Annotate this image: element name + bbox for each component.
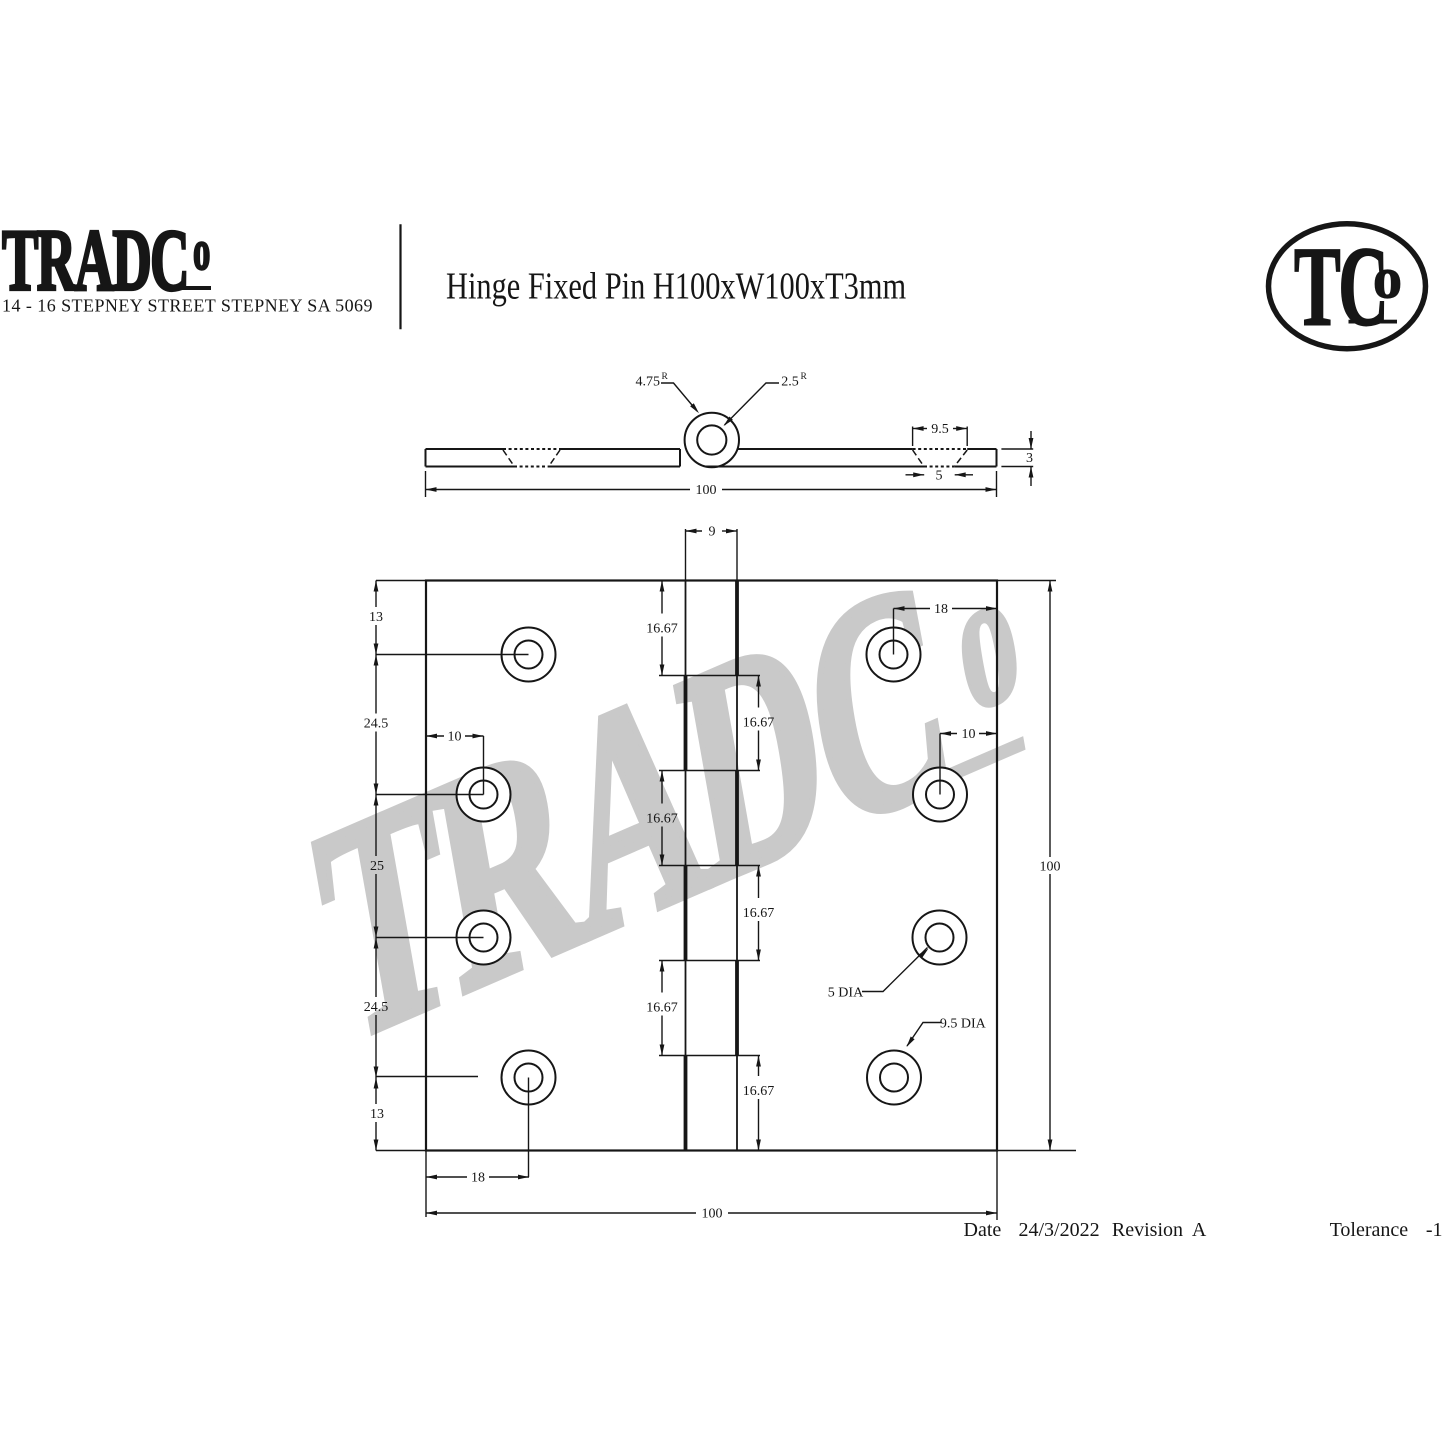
svg-text:-1: -1 xyxy=(1426,1219,1443,1241)
svg-text:5: 5 xyxy=(936,469,943,484)
svg-text:18: 18 xyxy=(934,602,948,617)
svg-text:TRADC: TRADC xyxy=(299,512,967,1107)
svg-text:100: 100 xyxy=(1040,860,1061,875)
svg-text:16.67: 16.67 xyxy=(743,716,775,731)
svg-text:9.5 DIA: 9.5 DIA xyxy=(940,1017,987,1032)
svg-text:25: 25 xyxy=(370,859,384,874)
svg-text:R: R xyxy=(662,372,669,382)
svg-text:10: 10 xyxy=(448,730,462,745)
svg-text:16.67: 16.67 xyxy=(646,622,678,637)
svg-text:24/3/2022: 24/3/2022 xyxy=(1019,1219,1100,1241)
svg-text:3: 3 xyxy=(1026,451,1033,466)
svg-text:Hinge Fixed Pin H100xW100xT3mm: Hinge Fixed Pin H100xW100xT3mm xyxy=(446,265,906,307)
svg-text:100: 100 xyxy=(702,1207,723,1222)
svg-text:16.67: 16.67 xyxy=(646,1001,678,1016)
svg-text:o: o xyxy=(193,220,210,283)
svg-text:13: 13 xyxy=(369,610,383,625)
svg-text:2.5: 2.5 xyxy=(781,375,799,390)
svg-text:9.5: 9.5 xyxy=(931,422,949,437)
svg-text:16.67: 16.67 xyxy=(743,906,775,921)
svg-text:4.75: 4.75 xyxy=(636,375,661,390)
svg-text:100: 100 xyxy=(696,483,717,498)
svg-text:o: o xyxy=(939,521,1033,756)
svg-text:Tolerance: Tolerance xyxy=(1330,1219,1409,1241)
svg-text:Date: Date xyxy=(964,1219,1002,1241)
svg-text:5 DIA: 5 DIA xyxy=(828,986,864,1001)
svg-text:R: R xyxy=(801,372,808,382)
svg-text:16.67: 16.67 xyxy=(743,1084,775,1099)
svg-text:Revision: Revision xyxy=(1112,1219,1183,1241)
svg-text:16.67: 16.67 xyxy=(646,812,678,827)
svg-text:10: 10 xyxy=(962,727,976,742)
svg-text:24.5: 24.5 xyxy=(364,717,389,732)
svg-text:14 - 16 STEPNEY STREET STEPNEY: 14 - 16 STEPNEY STREET STEPNEY SA 5069 xyxy=(2,296,373,316)
svg-text:9: 9 xyxy=(709,525,716,540)
svg-text:o: o xyxy=(1373,246,1402,311)
svg-text:13: 13 xyxy=(370,1107,384,1122)
svg-text:18: 18 xyxy=(471,1171,485,1186)
svg-text:A: A xyxy=(1192,1219,1207,1241)
svg-text:TRADC: TRADC xyxy=(2,211,188,308)
svg-text:24.5: 24.5 xyxy=(364,1000,389,1015)
